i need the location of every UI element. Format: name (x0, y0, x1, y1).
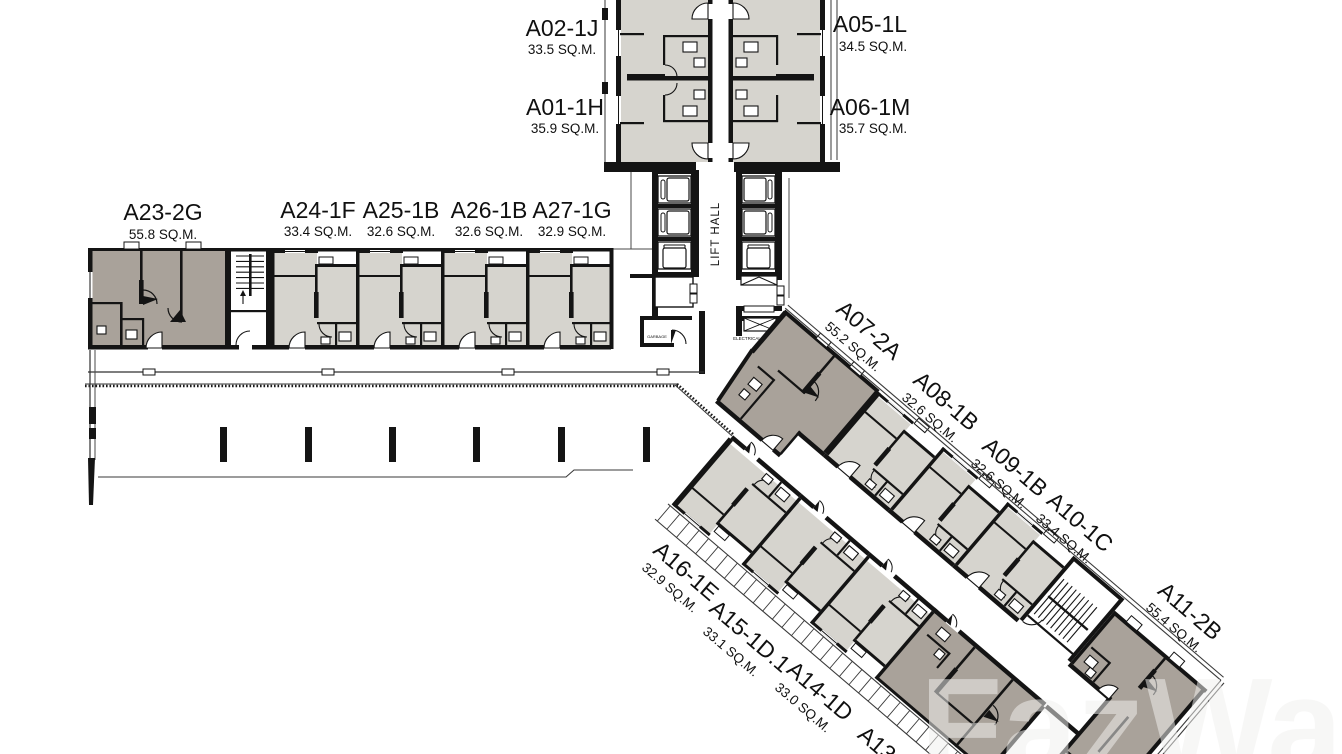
svg-text:A02-1J: A02-1J (526, 15, 599, 41)
svg-text:34.5 SQ.M.: 34.5 SQ.M. (839, 39, 907, 54)
svg-text:32.6 SQ.M.: 32.6 SQ.M. (455, 224, 523, 239)
svg-text:35.9 SQ.M.: 35.9 SQ.M. (531, 121, 599, 136)
svg-text:33.5 SQ.M.: 33.5 SQ.M. (528, 42, 596, 57)
svg-text:A06-1M: A06-1M (830, 94, 911, 120)
svg-text:ELECTRICAL: ELECTRICAL (733, 336, 761, 341)
svg-text:A01-1H: A01-1H (526, 94, 604, 120)
svg-text:33.4 SQ.M.: 33.4 SQ.M. (284, 224, 352, 239)
svg-text:A05-1L: A05-1L (833, 11, 907, 37)
svg-text:A27-1G: A27-1G (532, 197, 611, 223)
svg-text:FazWaz: FazWaz (920, 650, 1342, 754)
svg-text:A23-2G: A23-2G (123, 199, 202, 225)
svg-text:A24-1F: A24-1F (280, 197, 355, 223)
svg-text:35.7 SQ.M.: 35.7 SQ.M. (839, 121, 907, 136)
svg-text:32.9 SQ.M.: 32.9 SQ.M. (538, 224, 606, 239)
svg-text:32.6 SQ.M.: 32.6 SQ.M. (367, 224, 435, 239)
svg-text:A26-1B: A26-1B (451, 197, 528, 223)
svg-text:GARBAGE: GARBAGE (647, 334, 667, 339)
svg-text:55.8 SQ.M.: 55.8 SQ.M. (129, 227, 197, 242)
svg-text:LIFT HALL: LIFT HALL (710, 202, 722, 266)
svg-text:A25-1B: A25-1B (363, 197, 440, 223)
